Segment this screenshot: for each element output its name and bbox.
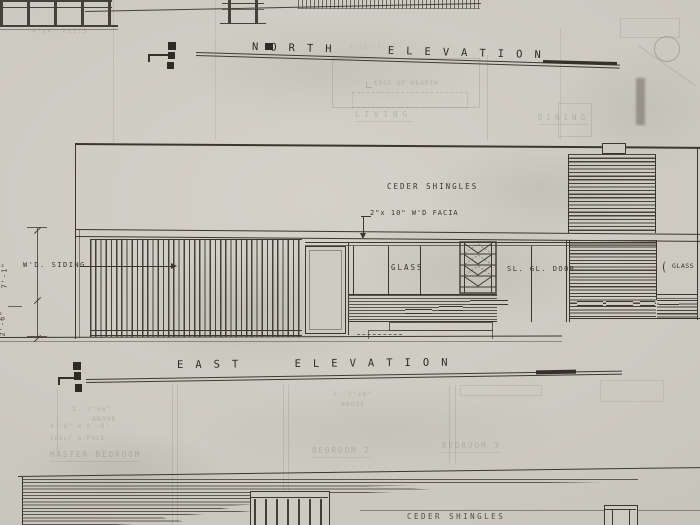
dimension-2-6: 2'-6" — [0, 310, 7, 336]
title-square-marker — [167, 62, 174, 69]
title-square-marker — [168, 42, 176, 50]
ladder-chevron-panel — [459, 241, 497, 294]
facia-leader-line — [363, 217, 364, 234]
siding-vent-slot — [606, 301, 633, 306]
ghost-fireplace-label: FIREPLACE — [350, 45, 392, 51]
ghost-master-bedroom-label: MASTER BEDROOM — [50, 451, 141, 462]
hidden-ground-dash-line — [357, 334, 402, 335]
railing-rail-line — [0, 7, 112, 8]
ghost-beam-note: ABOVE — [92, 416, 117, 423]
title-underline-heavy-segment — [536, 370, 576, 374]
title-square-marker — [74, 372, 81, 380]
facia-label: 2"x 10" W'D FACIA — [370, 210, 459, 217]
title-square-marker — [73, 362, 81, 370]
ceder-shingles-label: CEDER SHINGLES — [387, 183, 478, 191]
ghost-plan-outline — [460, 385, 542, 396]
deck-slot — [439, 306, 463, 311]
door-jamb-line — [531, 246, 532, 322]
ground-line — [0, 341, 562, 342]
building-left-edge — [75, 143, 76, 339]
ghost-stair-smudge — [636, 78, 645, 125]
siding-vent-slot — [659, 300, 679, 305]
shingle-course-line — [360, 510, 700, 511]
railing-drawing — [0, 0, 112, 27]
window-head-line — [605, 509, 636, 510]
dimension-7-1: 7'-1" — [2, 262, 9, 288]
leader-arc-icon — [663, 261, 669, 273]
title-square-marker — [168, 52, 175, 59]
title-leader-hook — [148, 54, 168, 62]
wood-siding-hatch — [90, 239, 302, 337]
ghost-plan-outline — [600, 380, 664, 402]
window-sill-line — [656, 298, 698, 299]
post-rail-line — [222, 3, 264, 4]
ghost-plan-outline — [620, 18, 680, 38]
ghost-bedroom2-label: BEDROOM 2 — [312, 447, 371, 458]
siding-base-line — [90, 330, 302, 331]
ceder-shingles-label-east: CEDER SHINGLES — [407, 513, 505, 521]
ghost-hearth-outline — [352, 92, 468, 108]
dimension-line — [37, 228, 38, 338]
ghost-beam-note: ABOVE — [341, 401, 366, 408]
ghost-beam-note: 2- 2"x6" — [72, 406, 111, 413]
glass-mullion — [353, 246, 354, 294]
ghost-shelf-note: 4'-6" x 0'-6" — [50, 424, 110, 430]
dimension-tick — [8, 306, 22, 307]
siding-arrowhead-icon — [171, 263, 177, 269]
wood-siding-label: W'D. SIDING — [23, 262, 86, 269]
paper-crease — [113, 0, 114, 142]
glass-mullion — [388, 246, 389, 294]
ghost-posts-note: 4"x4" POSTS — [32, 29, 88, 35]
window-mullion — [629, 509, 630, 525]
glass-right-label: GLASS — [672, 263, 694, 270]
horizontal-siding-hatch — [570, 240, 656, 318]
chimney-cap — [602, 143, 626, 154]
door-jamb-line — [566, 240, 567, 322]
roof-line — [18, 467, 700, 477]
building-left-edge-inner — [79, 230, 80, 338]
ghost-shelf-note: SHELF & POLE — [50, 436, 105, 442]
facia-arrowhead-icon — [360, 233, 366, 239]
small-window-drawing — [604, 505, 638, 525]
shingle-streak-hatch — [23, 479, 638, 525]
siding-leader-line — [80, 266, 172, 267]
window-head-line — [251, 497, 328, 498]
ghost-plan-wall-line — [57, 390, 58, 452]
chimney-shingle-hatch — [568, 154, 656, 233]
window-slat-bars — [254, 499, 325, 525]
deck-plank-hatch — [348, 294, 497, 322]
ghost-bedroom3-label: BEDROOM 3 — [442, 442, 501, 453]
glass-label: GLASS — [391, 264, 424, 272]
deck-slot — [405, 309, 432, 314]
paper-crease — [215, 0, 216, 140]
window-mullion — [612, 509, 613, 525]
post-base-line — [220, 23, 266, 24]
ghost-beam-note: 2- 2"x6" — [333, 391, 372, 398]
slatted-window-drawing — [250, 491, 330, 525]
architectural-blueprint-photo: 4"x4" POSTS NORTH ELEVATION FIREPLACE ED… — [0, 0, 700, 525]
door-panel — [305, 246, 346, 334]
ghost-plan-outline — [558, 103, 592, 137]
ghost-hearth-label: EDGE OF HEARTH — [374, 81, 439, 87]
sliding-glass-door-label: SL. GL. DOOR — [507, 266, 576, 273]
east-elevation-title: EAST ELEVATION — [177, 358, 460, 371]
railing-rail-line — [0, 25, 118, 27]
window-jamb-line — [656, 240, 657, 300]
title-square-marker — [75, 384, 82, 392]
title-leader-hook — [58, 377, 74, 385]
dimension-tick — [27, 227, 47, 228]
deck-slot — [470, 300, 508, 305]
siding-vent-slot — [640, 301, 655, 306]
ghost-leader-hook — [366, 82, 372, 88]
ghost-living-label: LIVING — [355, 111, 412, 122]
siding-vent-slot — [577, 301, 603, 306]
ghost-plan-wall-line — [487, 55, 488, 141]
door-panel-inner-frame — [309, 250, 342, 330]
window-sill-line — [656, 294, 698, 295]
